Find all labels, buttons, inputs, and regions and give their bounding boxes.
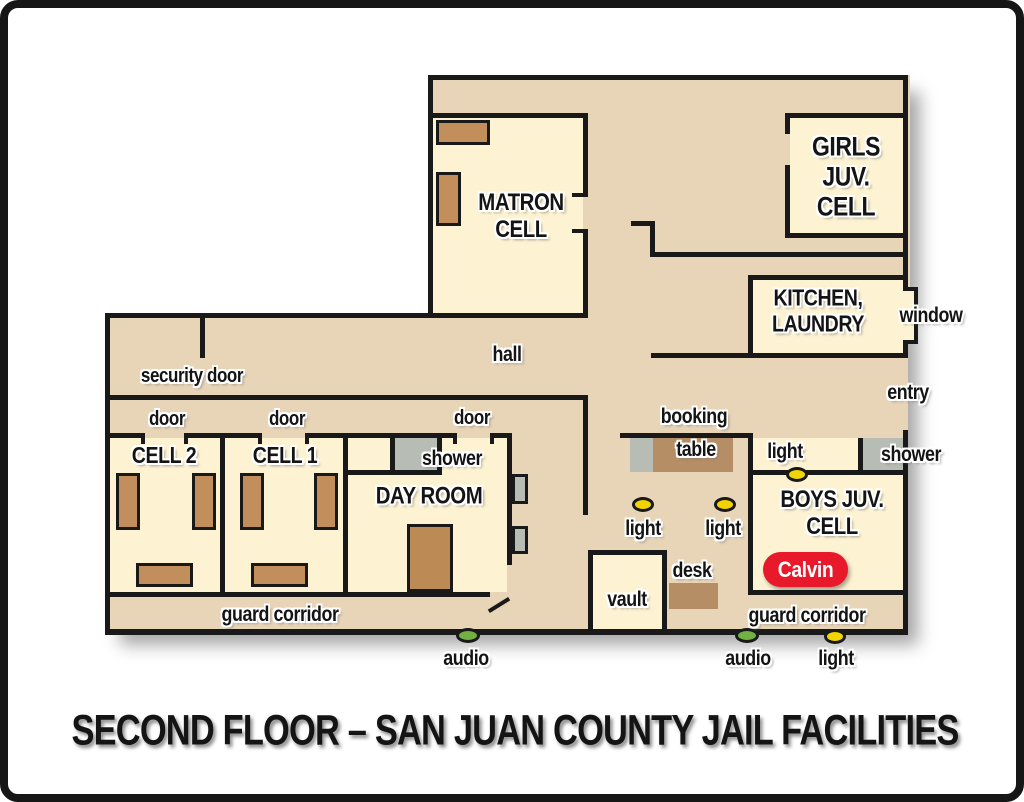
label-table: table [676,438,716,462]
calvin-location-badge: Calvin [763,552,848,587]
calvin-label: Calvin [778,557,833,583]
label-booking: booking [661,405,727,429]
image-border-frame [0,0,1024,802]
floor-plan-canvas: hall security door door door door CELL 2… [0,0,1024,802]
label-shower-right: shower [881,443,941,467]
label-guard-corridor-right: guard corridor [748,604,865,628]
